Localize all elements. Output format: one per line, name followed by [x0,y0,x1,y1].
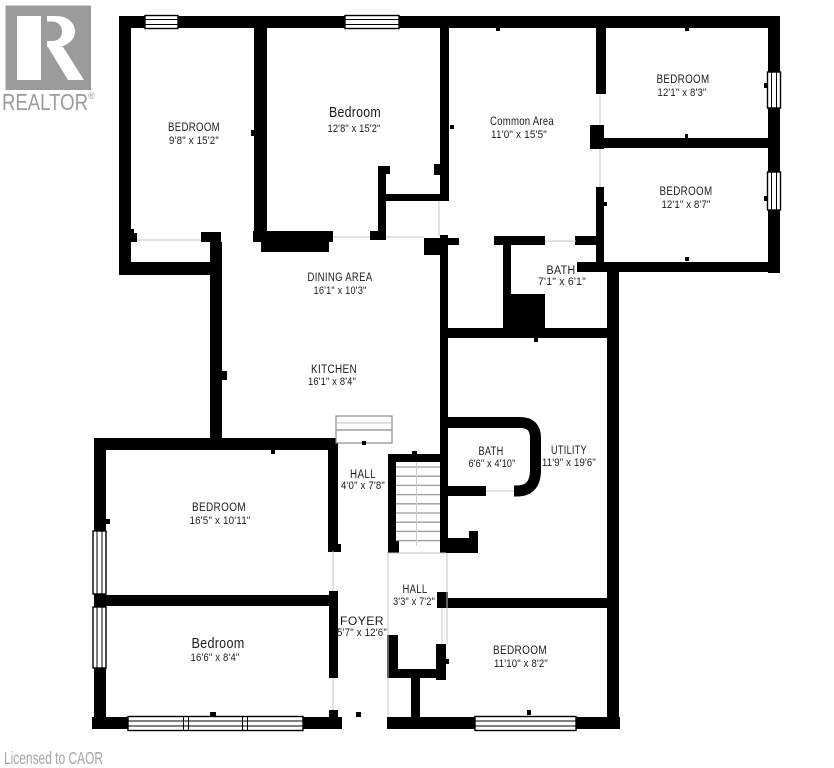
svg-text:BEDROOM: BEDROOM [192,502,246,514]
svg-text:BEDROOM: BEDROOM [660,186,713,198]
svg-text:®: ® [88,91,95,101]
svg-text:BEDROOM: BEDROOM [493,645,547,657]
svg-text:11'9" x 19'6": 11'9" x 19'6" [542,457,596,469]
svg-text:KITCHEN: KITCHEN [311,364,357,376]
svg-text:4'0" x 7'8": 4'0" x 7'8" [341,480,385,492]
svg-text:16'6" x 8'4": 16'6" x 8'4" [191,652,240,664]
svg-text:5'7" x 12'6": 5'7" x 12'6" [337,627,387,639]
svg-text:7'1" x 6'1": 7'1" x 6'1" [538,276,586,288]
svg-text:Licensed to CAOR: Licensed to CAOR [4,748,103,768]
svg-text:11'0" x 15'5": 11'0" x 15'5" [491,129,547,141]
svg-text:12'8" x 15'2": 12'8" x 15'2" [328,123,381,135]
svg-text:12'1" x 8'7": 12'1" x 8'7" [662,199,711,211]
svg-text:12'1" x 8'3": 12'1" x 8'3" [658,87,707,99]
svg-text:BATH: BATH [479,446,504,458]
svg-text:REALTOR: REALTOR [2,89,88,115]
svg-text:BEDROOM: BEDROOM [168,122,220,134]
svg-text:Bedroom: Bedroom [192,635,245,652]
svg-text:11'10" x 8'2": 11'10" x 8'2" [494,658,548,670]
svg-text:16'1" x 10'3": 16'1" x 10'3" [314,285,367,297]
svg-text:Bedroom: Bedroom [329,104,381,121]
svg-text:UTILITY: UTILITY [551,445,587,457]
svg-text:Common Area: Common Area [490,114,554,128]
svg-text:9'8" x 15'2": 9'8" x 15'2" [169,135,219,147]
svg-text:HALL: HALL [403,584,428,596]
svg-text:16'5" x 10'11": 16'5" x 10'11" [190,515,251,527]
svg-text:6'6" x 4'10": 6'6" x 4'10" [469,458,516,470]
svg-text:BEDROOM: BEDROOM [657,74,710,86]
svg-text:DINING AREA: DINING AREA [308,272,373,284]
svg-text:3'3" x 7'2": 3'3" x 7'2" [393,596,435,608]
svg-text:16'1" x 8'4": 16'1" x 8'4" [308,376,356,388]
